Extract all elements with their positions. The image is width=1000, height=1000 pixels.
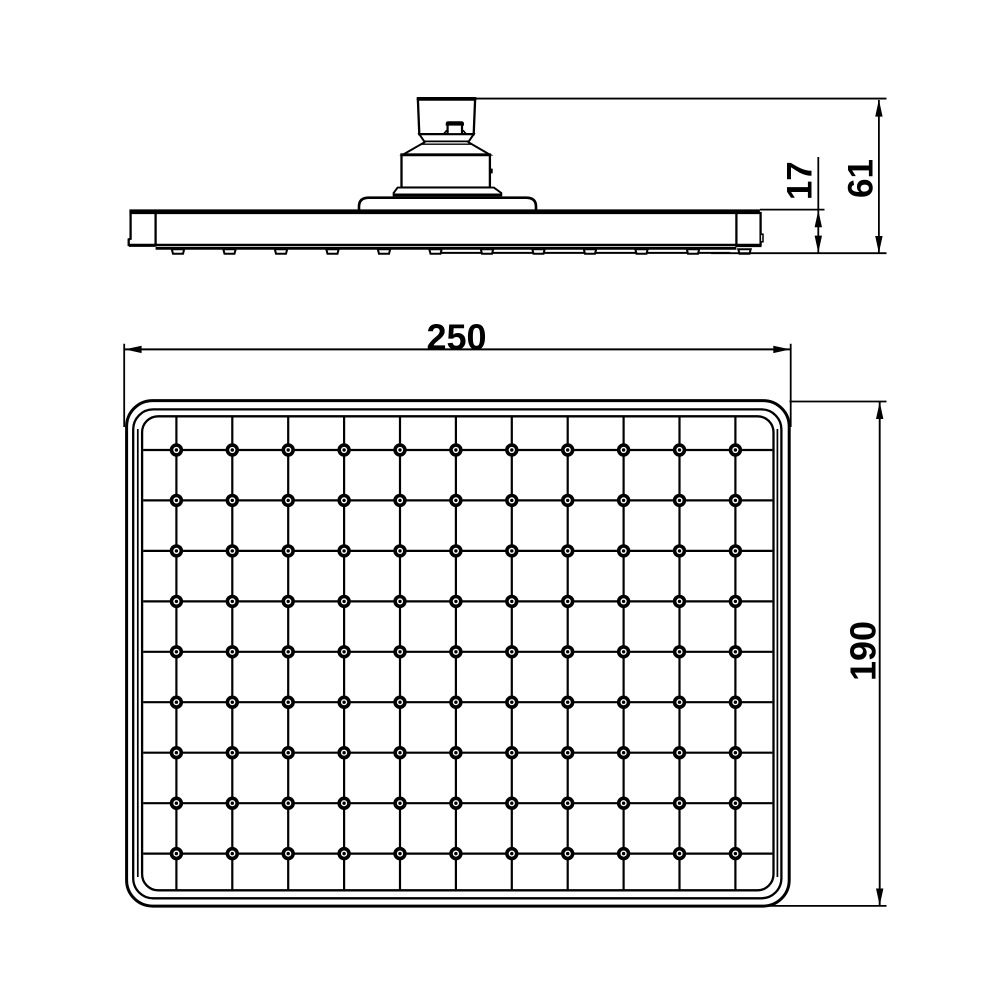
svg-text:190: 190 <box>843 621 884 681</box>
svg-text:17: 17 <box>781 161 820 200</box>
svg-text:250: 250 <box>426 317 486 358</box>
svg-text:61: 61 <box>842 159 881 198</box>
